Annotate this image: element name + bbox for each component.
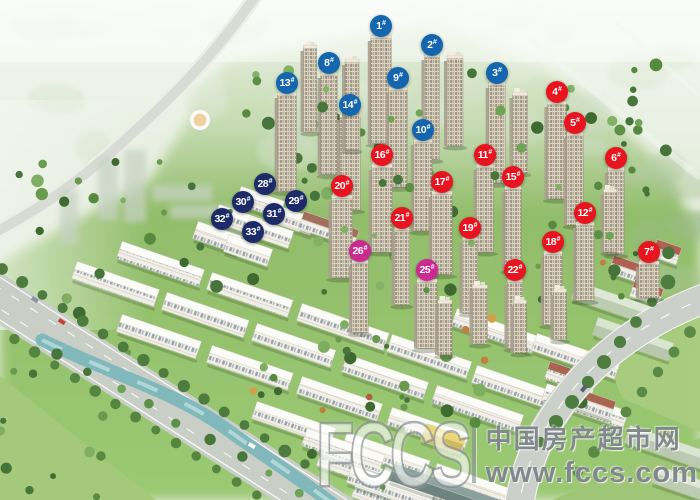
building-marker-2[interactable]: 2# bbox=[421, 34, 443, 56]
building-marker-9[interactable]: 9# bbox=[387, 67, 409, 89]
building-marker-14[interactable]: 14# bbox=[339, 94, 361, 116]
building-markers-layer: 1#2#3#4#5#6#7#8#9#10#11#12#13#14#15#16#1… bbox=[0, 0, 700, 500]
building-marker-18[interactable]: 18# bbox=[542, 231, 564, 253]
building-marker-1[interactable]: 1# bbox=[370, 15, 392, 37]
building-marker-5[interactable]: 5# bbox=[564, 112, 586, 134]
building-marker-16[interactable]: 16# bbox=[371, 144, 393, 166]
building-marker-4[interactable]: 4# bbox=[546, 81, 568, 103]
building-marker-7[interactable]: 7# bbox=[638, 241, 660, 263]
building-marker-29[interactable]: 29# bbox=[285, 190, 307, 212]
building-marker-32[interactable]: 32# bbox=[211, 208, 233, 230]
building-marker-25[interactable]: 25# bbox=[416, 259, 438, 281]
building-marker-12[interactable]: 12# bbox=[574, 202, 596, 224]
building-marker-22[interactable]: 22# bbox=[504, 259, 526, 281]
building-marker-6[interactable]: 6# bbox=[605, 147, 627, 169]
building-marker-11[interactable]: 11# bbox=[474, 144, 496, 166]
building-marker-15[interactable]: 15# bbox=[502, 166, 524, 188]
building-marker-30[interactable]: 30# bbox=[232, 191, 254, 213]
building-marker-19[interactable]: 19# bbox=[459, 217, 481, 239]
aerial-site-plan: 1#2#3#4#5#6#7#8#9#10#11#12#13#14#15#16#1… bbox=[0, 0, 700, 500]
building-marker-3[interactable]: 3# bbox=[486, 62, 508, 84]
building-marker-33[interactable]: 33# bbox=[242, 221, 264, 243]
building-marker-28[interactable]: 28# bbox=[254, 173, 276, 195]
building-marker-10[interactable]: 10# bbox=[412, 119, 434, 141]
building-marker-31[interactable]: 31# bbox=[263, 203, 285, 225]
building-marker-8[interactable]: 8# bbox=[318, 52, 340, 74]
building-marker-21[interactable]: 21# bbox=[391, 207, 413, 229]
building-marker-26[interactable]: 26# bbox=[349, 240, 371, 262]
building-marker-13[interactable]: 13# bbox=[276, 72, 298, 94]
building-marker-17[interactable]: 17# bbox=[431, 171, 453, 193]
building-marker-20[interactable]: 20# bbox=[331, 175, 353, 197]
